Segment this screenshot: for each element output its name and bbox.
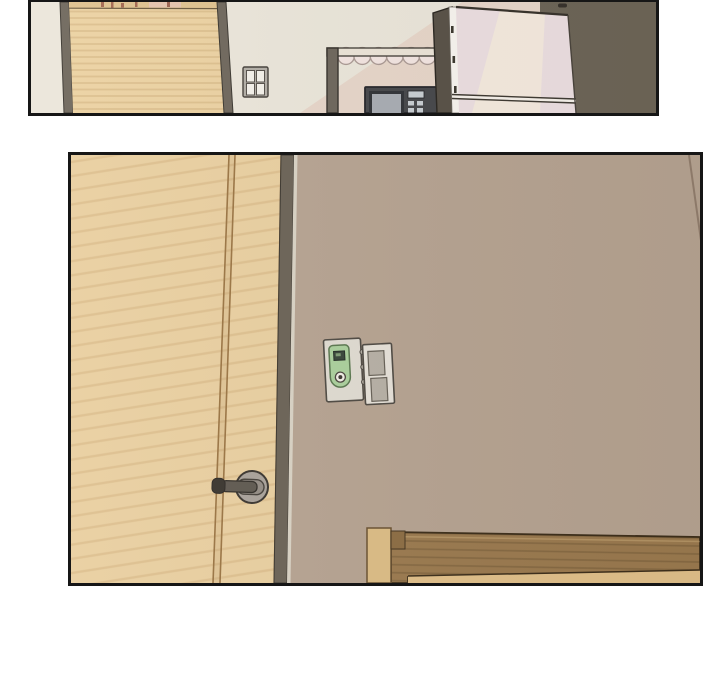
comic-panel-bedroom <box>68 152 703 586</box>
bedroom-scene <box>71 155 700 583</box>
comic-panel-kitchen <box>28 0 659 116</box>
panel-shading <box>31 2 656 113</box>
panel-shading <box>71 155 700 583</box>
kitchen-scene <box>31 2 656 113</box>
comic-page <box>0 0 720 700</box>
